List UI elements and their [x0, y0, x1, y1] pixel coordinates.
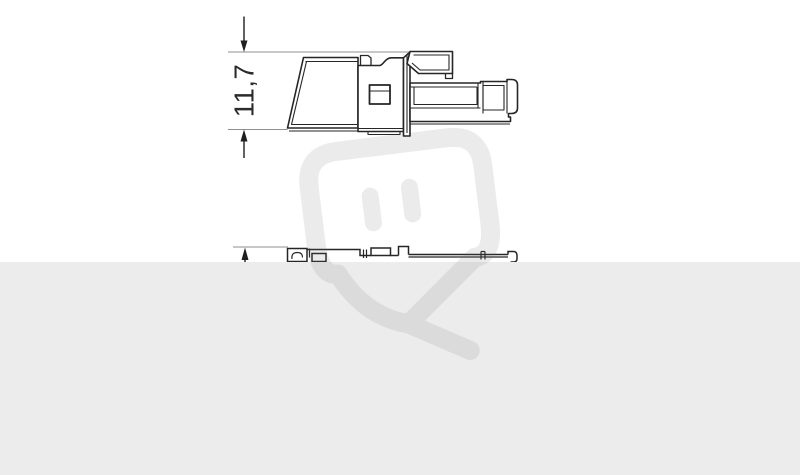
technical-drawing-canvas: 11,7: [0, 0, 800, 475]
profile-lever-end: [288, 249, 308, 262]
profile-bump: [371, 248, 391, 256]
dimension-label: 11,7: [229, 64, 260, 117]
technical-drawing-page: 11,7: [0, 0, 800, 475]
gray-panel: [0, 262, 800, 475]
housing-outline: [358, 58, 404, 132]
